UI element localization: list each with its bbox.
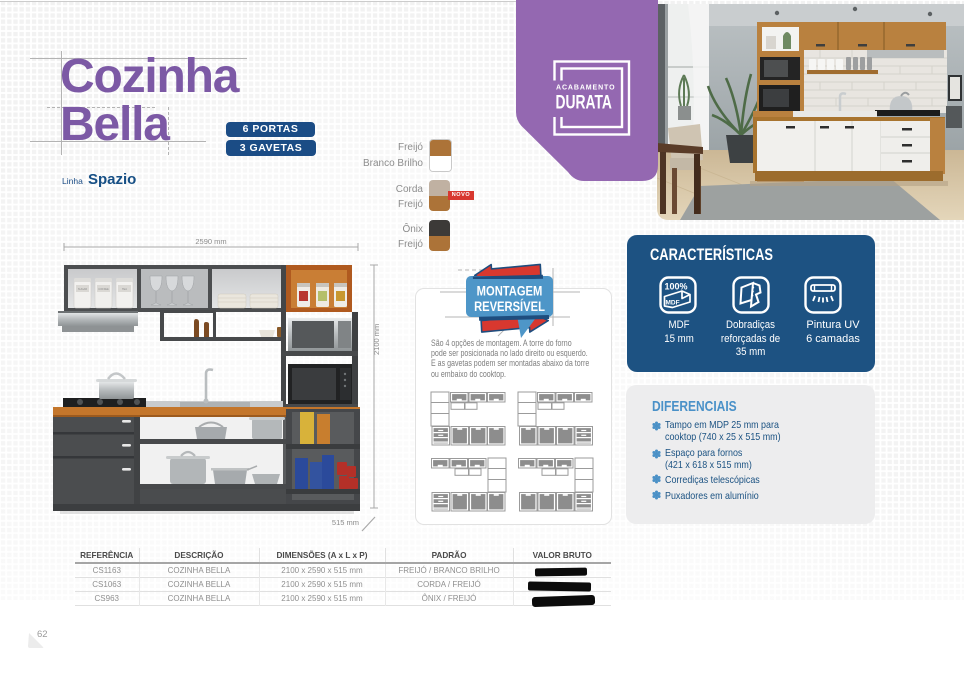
svg-text:100%: 100%	[665, 282, 688, 292]
svg-text:TEA: TEA	[122, 287, 127, 291]
svg-text:2100 mm: 2100 mm	[372, 324, 381, 355]
svg-text:515 mm: 515 mm	[332, 518, 359, 527]
svg-text:COFFEE: COFFEE	[98, 287, 109, 291]
svg-text:REVERSÍVEL: REVERSÍVEL	[474, 298, 545, 315]
svg-text:2590 mm: 2590 mm	[195, 237, 226, 246]
svg-text:SUGAR: SUGAR	[78, 287, 87, 291]
svg-text:MONTAGEM: MONTAGEM	[477, 283, 543, 298]
svg-text:DURATA: DURATA	[556, 91, 612, 113]
svg-text:MDF: MDF	[666, 300, 680, 307]
